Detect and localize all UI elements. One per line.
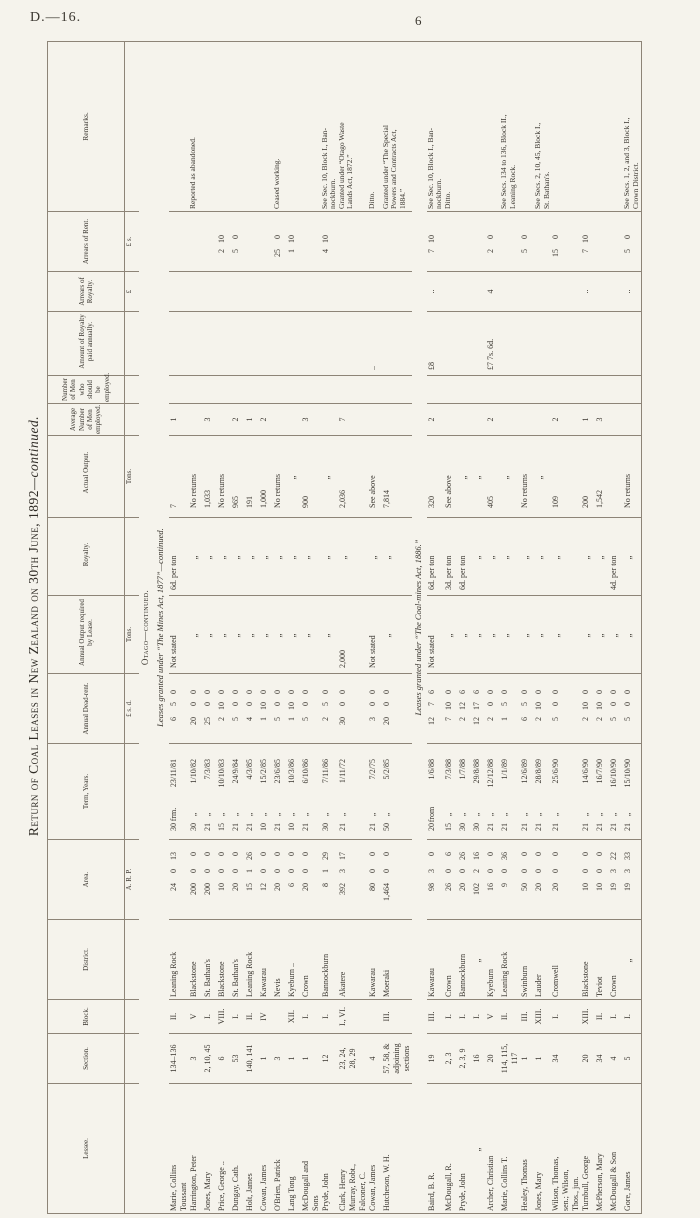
cell-average-men-employed: [520, 404, 534, 436]
cell-average-men-employed: 2: [259, 404, 273, 436]
cell-lessee: McDougall and Sons: [301, 1084, 321, 1214]
cell-men-should-be-employed: [623, 376, 641, 404]
cell-royalty-paid-annually: £7 7s. 6d.: [486, 312, 500, 376]
cell-royalty-paid-annually: [301, 312, 321, 376]
cell-royalty-paid-annually: [287, 312, 301, 376]
table-row: Cowan, James4Kawarau800021„7/2/75300Not …: [368, 42, 382, 1214]
cell-block: I., VI.: [338, 1000, 368, 1034]
cell-arrears-of-rent: [534, 212, 551, 272]
cell-annual-dead-rent: 300: [368, 674, 382, 744]
cell-average-men-employed: 2: [427, 404, 444, 436]
cell-lessee: Jones, Mary: [534, 1084, 551, 1214]
cell-section: 114, 115,117: [500, 1034, 520, 1084]
cell-arrears-of-royalty: [534, 272, 551, 312]
cell-men-should-be-employed: [551, 376, 581, 404]
cell-section: 34: [595, 1034, 609, 1084]
table-header: Lessee. Section. Block. District. Area. …: [48, 42, 125, 1214]
cell-annual-output-required: Not stated: [169, 596, 189, 674]
cell-royalty-paid-annually: [321, 312, 338, 376]
cell-term-years: 21„16/7/90: [595, 744, 609, 840]
cell-men-should-be-employed: [217, 376, 231, 404]
cell-lessee: Pryde, John: [458, 1084, 472, 1214]
cell-actual-output: 405: [486, 436, 500, 518]
cell-annual-output-required: „: [458, 596, 472, 674]
cell-area: 1600: [486, 840, 500, 920]
cell-average-men-employed: [273, 404, 287, 436]
cell-royalty-paid-annually: [520, 312, 534, 376]
cell-actual-output: 320: [427, 436, 444, 518]
cell-men-should-be-employed: [287, 376, 301, 404]
cell-royalty: „: [245, 518, 259, 596]
cell-arrears-of-rent: 250: [273, 212, 287, 272]
cell-remarks: [486, 42, 500, 212]
cell-term-years: 21„16/10/90: [609, 744, 623, 840]
cell-block: I.: [623, 1000, 641, 1034]
cell-term-years: 21„1/11/72: [338, 744, 368, 840]
cell-district: Leaning Rock: [169, 920, 189, 1000]
cell-area: 392317: [338, 840, 368, 920]
cell-block: II.: [169, 1000, 189, 1034]
cell-arrears-of-rent: 710: [581, 212, 595, 272]
cell-lessee: Jones, Mary: [203, 1084, 217, 1214]
cell-royalty: 3d. per ton: [444, 518, 458, 596]
table-row: Cowan, James1IVKawarau120010„15/2/851100…: [259, 42, 273, 1214]
cell-section: 1: [520, 1034, 534, 1084]
cell-royalty: „: [623, 518, 641, 596]
cell-actual-output: 1,033: [203, 436, 217, 518]
region-caption-row: Otago—continued.: [139, 42, 154, 1214]
cell-arrears-of-royalty: [520, 272, 534, 312]
document-reference: D.—16.: [30, 10, 81, 26]
cell-term-years: 30frm.23/11/81: [169, 744, 189, 840]
cell-section: 57, 58, &adjoiningsections: [382, 1034, 412, 1084]
cell-annual-dead-rent: 1276: [427, 674, 444, 744]
cell-annual-output-required: „: [217, 596, 231, 674]
cell-annual-dead-rent: 2000: [382, 674, 412, 744]
subheader-actual-output-units: Tons.: [125, 436, 139, 518]
cell-section: 1: [259, 1034, 273, 1084]
cell-men-should-be-employed: [273, 376, 287, 404]
cell-arrears-of-rent: 710: [427, 212, 444, 272]
report-title-continued: —continued.: [26, 416, 41, 490]
cell-arrears-of-royalty: [500, 272, 520, 312]
cell-block: XIII.: [534, 1000, 551, 1034]
cell-section: 134–136: [169, 1034, 189, 1084]
table-row: Marie, Collins Toussant134–136II.Leaning…: [169, 42, 189, 1214]
cell-district: Blackstone: [189, 920, 203, 1000]
cell-remarks: Reported as abandoned.: [189, 42, 203, 212]
cell-term-years: 21„24/9/84: [231, 744, 245, 840]
cell-remarks: Ditto.: [444, 42, 458, 212]
column-header-arrears-rent: Arrears of Rent.: [48, 212, 125, 272]
cell-royalty: 4d. per ton: [609, 518, 623, 596]
column-header-section: Section.: [48, 1034, 125, 1084]
cell-actual-output: „: [500, 436, 520, 518]
table-row: Dungay, Cath.53I.St. Bathan's200021„24/9…: [231, 42, 245, 1214]
cell-actual-output: See above: [368, 436, 382, 518]
cell-lessee: Archer, Christian: [486, 1084, 500, 1214]
cell-block: XIII.: [581, 1000, 595, 1034]
cell-average-men-employed: [321, 404, 338, 436]
cell-royalty-paid-annually: [609, 312, 623, 376]
cell-area: 1,46400: [382, 840, 412, 920]
cell-arrears-of-rent: [444, 212, 458, 272]
cell-remarks: [259, 42, 273, 212]
cell-average-men-employed: [609, 404, 623, 436]
cell-area: 1200: [259, 840, 273, 920]
cell-actual-output: „: [458, 436, 472, 518]
cell-royalty: „: [368, 518, 382, 596]
cell-average-men-employed: 3: [595, 404, 609, 436]
cell-lessee: Marie, Collins T.: [500, 1084, 520, 1214]
cell-men-should-be-employed: [444, 376, 458, 404]
cell-remarks: [472, 42, 486, 212]
cell-term-years: 21„12/6/89: [520, 744, 534, 840]
subheader-term: [125, 744, 139, 840]
cell-annual-output-required: „: [486, 596, 500, 674]
cell-actual-output: No returns: [623, 436, 641, 518]
column-header-average-men: Average Number of Men employed.: [48, 404, 125, 436]
cell-area: 2606: [444, 840, 458, 920]
cell-annual-output-required: Not stated: [427, 596, 444, 674]
table-row: Turnbull, George20XIII.Blackstone100021„…: [581, 42, 595, 1214]
cell-actual-output: „: [321, 436, 338, 518]
column-header-men-should: Number of Men who should be employed.: [48, 376, 125, 404]
cell-district: Lauder: [534, 920, 551, 1000]
column-header-arrears-royalty: Arrears of Royalty.: [48, 272, 125, 312]
cell-annual-output-required: „: [203, 596, 217, 674]
cell-lessee: McDougall & Son: [609, 1084, 623, 1214]
cell-term-years: 21„28/8/89: [534, 744, 551, 840]
cell-royalty: „: [486, 518, 500, 596]
cell-royalty: „: [472, 518, 486, 596]
cell-royalty: „: [217, 518, 231, 596]
cell-remarks: Granted under “The Special Powers and Co…: [382, 42, 412, 212]
subheader-block: [125, 1000, 139, 1034]
cell-lessee: „: [472, 1084, 486, 1214]
cell-arrears-of-royalty: [287, 272, 301, 312]
column-header-term-years: Term, Years.: [48, 744, 125, 840]
cell-section: 2, 10, 45: [203, 1034, 217, 1084]
cell-men-should-be-employed: [169, 376, 189, 404]
cell-arrears-of-royalty: [458, 272, 472, 312]
cell-lessee: Gore, James: [623, 1084, 641, 1214]
table-row: „16I.„10221630„29/8/8812176„„„: [472, 42, 486, 1214]
cell-arrears-of-royalty: [321, 272, 338, 312]
cell-royalty: „: [203, 518, 217, 596]
cell-district: St. Bathan's: [231, 920, 245, 1000]
table-row: Price, George ..6VIII.Blackstone100015„1…: [217, 42, 231, 1214]
cell-annual-dead-rent: 2500: [203, 674, 217, 744]
group1-caption-row: Leases granted under “The Mines Act, 187…: [154, 42, 169, 1214]
cell-average-men-employed: [368, 404, 382, 436]
cell-term-years: 10„10/3/86: [287, 744, 301, 840]
group2-caption-row: Leases granted under “The Coal-mines Act…: [412, 42, 427, 1214]
cell-annual-output-required: „: [231, 596, 245, 674]
cell-annual-dead-rent: 500: [623, 674, 641, 744]
column-header-annual-output-required: Annual Output required by Lease.: [48, 596, 125, 674]
cell-men-should-be-employed: [259, 376, 273, 404]
cell-royalty-paid-annually: [551, 312, 581, 376]
cell-block: III.: [382, 1000, 412, 1034]
cell-average-men-employed: 2: [551, 404, 581, 436]
table-row: Baird, B. R.19III.Kawarau983020from1/6/8…: [427, 42, 444, 1214]
cell-men-should-be-employed: [368, 376, 382, 404]
cell-royalty-paid-annually: [534, 312, 551, 376]
cell-remarks: See Sec. 10, Block I., Ban- nockburn.: [321, 42, 338, 212]
cell-district: Crown: [301, 920, 321, 1000]
cell-actual-output: 2,036: [338, 436, 368, 518]
cell-block: I.: [609, 1000, 623, 1034]
cell-lessee: Turnbull, George: [581, 1084, 595, 1214]
cell-block: V: [486, 1000, 500, 1034]
cell-section: 140, 141: [245, 1034, 259, 1084]
cell-annual-output-required: „: [273, 596, 287, 674]
cell-area: 8129: [321, 840, 338, 920]
cell-royalty: „: [500, 518, 520, 596]
cell-average-men-employed: 1: [245, 404, 259, 436]
cell-remarks: [217, 42, 231, 212]
cell-arrears-of-royalty: [203, 272, 217, 312]
cell-annual-output-required: Not stated: [368, 596, 382, 674]
table-row: Marie, Collins T.114, 115,117II.Leaning …: [500, 42, 520, 1214]
cell-term-years: 21„25/6/90: [551, 744, 581, 840]
cell-remarks: Ditto.: [368, 42, 382, 212]
cell-men-should-be-employed: [486, 376, 500, 404]
subheader-section: [125, 1034, 139, 1084]
cell-term-years: 30„29/8/88: [472, 744, 486, 840]
cell-annual-dead-rent: 7100: [444, 674, 458, 744]
cell-arrears-of-rent: [259, 212, 273, 272]
column-header-block: Block.: [48, 1000, 125, 1034]
cell-block: [368, 1000, 382, 1034]
cell-actual-output: No returns: [217, 436, 231, 518]
cell-district: Kawarau: [259, 920, 273, 1000]
cell-block: I.: [203, 1000, 217, 1034]
table-row: O'Brien, Patrick3Nevis200021„23/6/85500„…: [273, 42, 287, 1214]
subheader-annual-output-units: Tons.: [125, 596, 139, 674]
column-header-royalty-paid: Amount of Royalty paid annually.: [48, 312, 125, 376]
table-row: Hutcheson, W. H.57, 58, &adjoiningsectio…: [382, 42, 412, 1214]
cell-area: 1000: [595, 840, 609, 920]
cell-annual-dead-rent: 2100: [581, 674, 595, 744]
page-number: 6: [415, 13, 422, 29]
cell-average-men-employed: [534, 404, 551, 436]
cell-men-should-be-employed: [472, 376, 486, 404]
cell-lessee: Cowan, James: [368, 1084, 382, 1214]
cell-lessee: Marie, Collins Toussant: [169, 1084, 189, 1214]
cell-actual-output: No returns: [273, 436, 287, 518]
cell-remarks: [169, 42, 189, 212]
cell-block: II.: [500, 1000, 520, 1034]
cell-term-years: 21„12/12/88: [486, 744, 500, 840]
cell-remarks: [245, 42, 259, 212]
cell-royalty-paid-annually: [382, 312, 412, 376]
cell-actual-output: „: [472, 436, 486, 518]
cell-men-should-be-employed: [595, 376, 609, 404]
cell-royalty-paid-annually: [500, 312, 520, 376]
cell-royalty: „: [520, 518, 534, 596]
cell-section: 1: [301, 1034, 321, 1084]
cell-lessee: Pryde, John: [321, 1084, 338, 1214]
cell-remarks: [301, 42, 321, 212]
cell-average-men-employed: 1: [169, 404, 189, 436]
cell-block: I.: [472, 1000, 486, 1034]
cell-remarks: [520, 42, 534, 212]
cell-section: 5: [623, 1034, 641, 1084]
cell-term-years: 21„14/6/90: [581, 744, 595, 840]
cell-district: St. Bathan's: [203, 920, 217, 1000]
cell-arrears-of-royalty: [259, 272, 273, 312]
report-title-main: Return of Coal Leases in New Zealand on …: [26, 490, 41, 836]
table-row: Clark, Henry Murray, Robt., Falconer, C.…: [338, 42, 368, 1214]
cell-annual-dead-rent: 2126: [458, 674, 472, 744]
cell-annual-output-required: „: [520, 596, 534, 674]
cell-lessee: Healey, Thomas: [520, 1084, 534, 1214]
cell-actual-output: „: [534, 436, 551, 518]
table-row: McPherson, Mary34II.Teviot100021„16/7/90…: [595, 42, 609, 1214]
cell-district: Leaning Rock: [245, 920, 259, 1000]
cell-royalty: „: [595, 518, 609, 596]
cell-section: 34: [551, 1034, 581, 1084]
cell-royalty: 6d. per ton: [169, 518, 189, 596]
cell-lessee: Harrington, Peter: [189, 1084, 203, 1214]
table-row: Jones, Mary2, 10, 45I.St. Bathan's200002…: [203, 42, 217, 1214]
cell-term-years: 30„1/7/88: [458, 744, 472, 840]
cell-royalty: 6d. per ton: [458, 518, 472, 596]
cell-section: 2, 3: [444, 1034, 458, 1084]
subheader-area-units: A. R. P.: [125, 840, 139, 920]
cell-royalty: „: [231, 518, 245, 596]
cell-district: Cromwell: [551, 920, 581, 1000]
cell-district: Kawarau: [368, 920, 382, 1000]
cell-royalty-paid-annually: [444, 312, 458, 376]
group1-rows: Marie, Collins Toussant134–136II.Leaning…: [169, 42, 412, 1214]
cell-annual-output-required: „: [623, 596, 641, 674]
cell-lessee: Clark, Henry Murray, Robt., Falconer, C.: [338, 1084, 368, 1214]
cell-arrears-of-rent: 210: [217, 212, 231, 272]
cell-district: Nevis: [273, 920, 287, 1000]
subheader-lessee: [125, 1084, 139, 1214]
cell-average-men-employed: 2: [231, 404, 245, 436]
cell-lessee: McDougall, R.: [444, 1084, 458, 1214]
column-header-annual-dead-rent: Annual Dead-rent.: [48, 674, 125, 744]
cell-arrears-of-royalty: [169, 272, 189, 312]
coal-leases-table: Lessee. Section. Block. District. Area. …: [47, 41, 642, 1214]
cell-block: III.: [520, 1000, 534, 1034]
cell-term-years: 21„7/2/75: [368, 744, 382, 840]
cell-block: [273, 1000, 287, 1034]
cell-royalty: „: [321, 518, 338, 596]
cell-arrears-of-rent: 150: [551, 212, 581, 272]
cell-royalty: „: [301, 518, 321, 596]
cell-block: I.: [321, 1000, 338, 1034]
subheader-arrears-royalty-units: £: [125, 272, 139, 312]
cell-remarks: See Secs. 1, 2, and 3, Block I., Crown D…: [623, 42, 641, 212]
cell-area: 2000: [534, 840, 551, 920]
cell-remarks: [551, 42, 581, 212]
cell-area: 19322: [609, 840, 623, 920]
cell-arrears-of-rent: 410: [321, 212, 338, 272]
cell-section: 2, 3, 9: [458, 1034, 472, 1084]
cell-royalty: „: [273, 518, 287, 596]
cell-royalty: „: [551, 518, 581, 596]
cell-area: 15126: [245, 840, 259, 920]
cell-actual-output: „: [287, 436, 301, 518]
cell-remarks: [203, 42, 217, 212]
cell-annual-output-required: „: [287, 596, 301, 674]
subheader-arrears-rent-units: £ s.: [125, 212, 139, 272]
cell-remarks: [595, 42, 609, 212]
cell-remarks: See Secs. 2, 10, 45, Block I., St. Batha…: [534, 42, 551, 212]
cell-annual-output-required: „: [189, 596, 203, 674]
cell-district: Blackstone: [217, 920, 231, 1000]
cell-actual-output: 191: [245, 436, 259, 518]
cell-remarks: Granted under “Otago Waste Lands Act, 18…: [338, 42, 368, 212]
subheader-royalty-paid: [125, 312, 139, 376]
cell-royalty: „: [581, 518, 595, 596]
cell-area: 5000: [520, 840, 534, 920]
cell-annual-dead-rent: 2100: [217, 674, 231, 744]
cell-arrears-of-royalty: [273, 272, 287, 312]
cell-royalty: „: [259, 518, 273, 596]
cell-term-years: 20from1/6/88: [427, 744, 444, 840]
cell-royalty: 6d. per ton: [427, 518, 444, 596]
cell-district: „: [472, 920, 486, 1000]
cell-block: II.: [595, 1000, 609, 1034]
cell-term-years: 21„23/6/85: [273, 744, 287, 840]
cell-lessee: Wilson, Thomas, sen.; Wilson, Thos., jun…: [551, 1084, 581, 1214]
cell-section: 20: [486, 1034, 500, 1084]
cell-block: I.: [551, 1000, 581, 1034]
cell-average-men-employed: [458, 404, 472, 436]
cell-arrears-of-royalty: [217, 272, 231, 312]
cell-term-years: 21„7/3/83: [203, 744, 217, 840]
table-row: Healey, Thomas1III.Swinburn500021„12/6/8…: [520, 42, 534, 1214]
group1-caption: Leases granted under “The Mines Act, 187…: [154, 42, 169, 1214]
column-header-area: Area.: [48, 840, 125, 920]
cell-arrears-of-royalty: [231, 272, 245, 312]
cell-annual-dead-rent: 500: [273, 674, 287, 744]
cell-arrears-of-rent: [595, 212, 609, 272]
cell-men-should-be-employed: [301, 376, 321, 404]
cell-men-should-be-employed: [231, 376, 245, 404]
cell-area: 9036: [500, 840, 520, 920]
cell-annual-dead-rent: 2100: [534, 674, 551, 744]
cell-block: III.: [427, 1000, 444, 1034]
cell-area: 1000: [581, 840, 595, 920]
column-header-royalty: Royalty.: [48, 518, 125, 596]
cell-district: Moeraki: [382, 920, 412, 1000]
cell-area: 2000: [301, 840, 321, 920]
cell-block: IV: [259, 1000, 273, 1034]
cell-section: 16: [472, 1034, 486, 1084]
cell-annual-dead-rent: 2000: [189, 674, 203, 744]
cell-royalty: „: [382, 518, 412, 596]
cell-royalty-paid-annually: £8: [427, 312, 444, 376]
cell-annual-output-required: „: [301, 596, 321, 674]
cell-section: 4: [609, 1034, 623, 1084]
table-row: McDougall & Son4I.Crown1932221„16/10/905…: [609, 42, 623, 1214]
cell-actual-output: 965: [231, 436, 245, 518]
cell-arrears-of-rent: [301, 212, 321, 272]
cell-section: 23, 24,28, 29: [338, 1034, 368, 1084]
cell-men-should-be-employed: [382, 376, 412, 404]
cell-annual-output-required: „: [245, 596, 259, 674]
cell-annual-dead-rent: 500: [301, 674, 321, 744]
cell-arrears-of-royalty: [338, 272, 368, 312]
cell-term-years: 21„4/3/85: [245, 744, 259, 840]
